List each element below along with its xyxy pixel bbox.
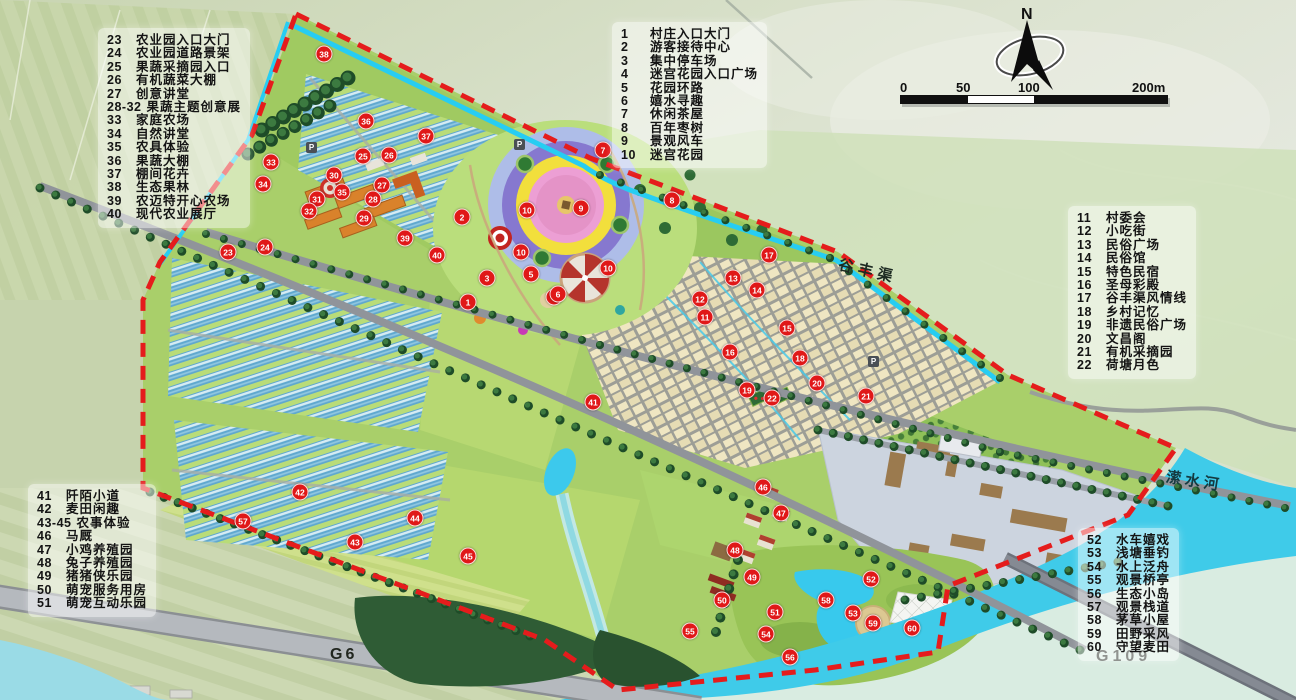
legend-item: 24农业园道路景架 (107, 47, 241, 60)
highway-g6-label: G6 (330, 646, 357, 664)
legend-item: 38生态果林 (107, 181, 241, 194)
legend-item: 2游客接待中心 (621, 41, 758, 54)
legend-item: 42麦田闲趣 (37, 503, 147, 516)
legend-item: 58茅草小屋 (1087, 614, 1170, 627)
parking-icon: P (514, 139, 525, 150)
legend-waterfront-zone: 52水车嬉戏53浅塘垂钓54水上泛舟55观景桥亭56生态小岛57观景栈道58茅草… (1078, 528, 1179, 661)
outside-fields-west (0, 300, 143, 488)
legend-item: 10迷宫花园 (621, 149, 758, 162)
legend-item: 22荷塘月色 (1077, 359, 1187, 372)
legend-item: 40现代农业展厅 (107, 208, 241, 221)
legend-folk-zone: 11村委会12小吃街13民俗广场14民俗馆15特色民宿16圣母彩殿17谷丰渠风情… (1068, 206, 1196, 379)
legend-item: 60守望麦田 (1087, 641, 1170, 654)
scale-tick: 0 (900, 80, 907, 95)
legend-item: 51萌宠互动乐园 (37, 597, 147, 610)
legend-agriculture-zone: 23农业园入口大门24农业园道路景架25果蔬采摘园入口26有机蔬菜大棚27创意讲… (98, 28, 250, 228)
legend-village-entry-zone: 1村庄入口大门2游客接待中心3集中停车场4迷宫花园入口广场5花园环路6嬉水寻趣7… (612, 22, 767, 168)
legend-item: 49猪猪侠乐园 (37, 570, 147, 583)
legend-item: 33家庭农场 (107, 114, 241, 127)
legend-item: 4迷宫花园入口广场 (621, 68, 758, 81)
scale-tick: 50 (956, 80, 970, 95)
scale-tick: 200m (1132, 80, 1165, 95)
legend-item: 55观景桥亭 (1087, 574, 1170, 587)
scale-tick: 100 (1018, 80, 1040, 95)
legend-item: 35农具体验 (107, 141, 241, 154)
legend-item: 26有机蔬菜大棚 (107, 74, 241, 87)
legend-item: 14民俗馆 (1077, 252, 1187, 265)
legend-item: 19非遗民俗广场 (1077, 319, 1187, 332)
legend-item: 12小吃街 (1077, 225, 1187, 238)
legend-item: 7休闲茶屋 (621, 108, 758, 121)
legend-item: 53浅塘垂钓 (1087, 547, 1170, 560)
master-plan-screenshot: 1234567891010101112131415161718192021222… (0, 0, 1296, 700)
legend-farm-fun-zone: 41阡陌小道42麦田闲趣43-45农事体验46马厩47小鸡养殖园48兔子养殖园4… (28, 484, 156, 617)
parking-icon: P (306, 142, 317, 153)
legend-item: 17谷丰渠风情线 (1077, 292, 1187, 305)
parking-icon: P (868, 356, 879, 367)
legend-item: 9景观风车 (621, 135, 758, 148)
compass-north-label: N (1021, 6, 1033, 24)
legend-item: 46马厩 (37, 530, 147, 543)
scale-bar: 0 50 100 200m (900, 80, 1168, 106)
